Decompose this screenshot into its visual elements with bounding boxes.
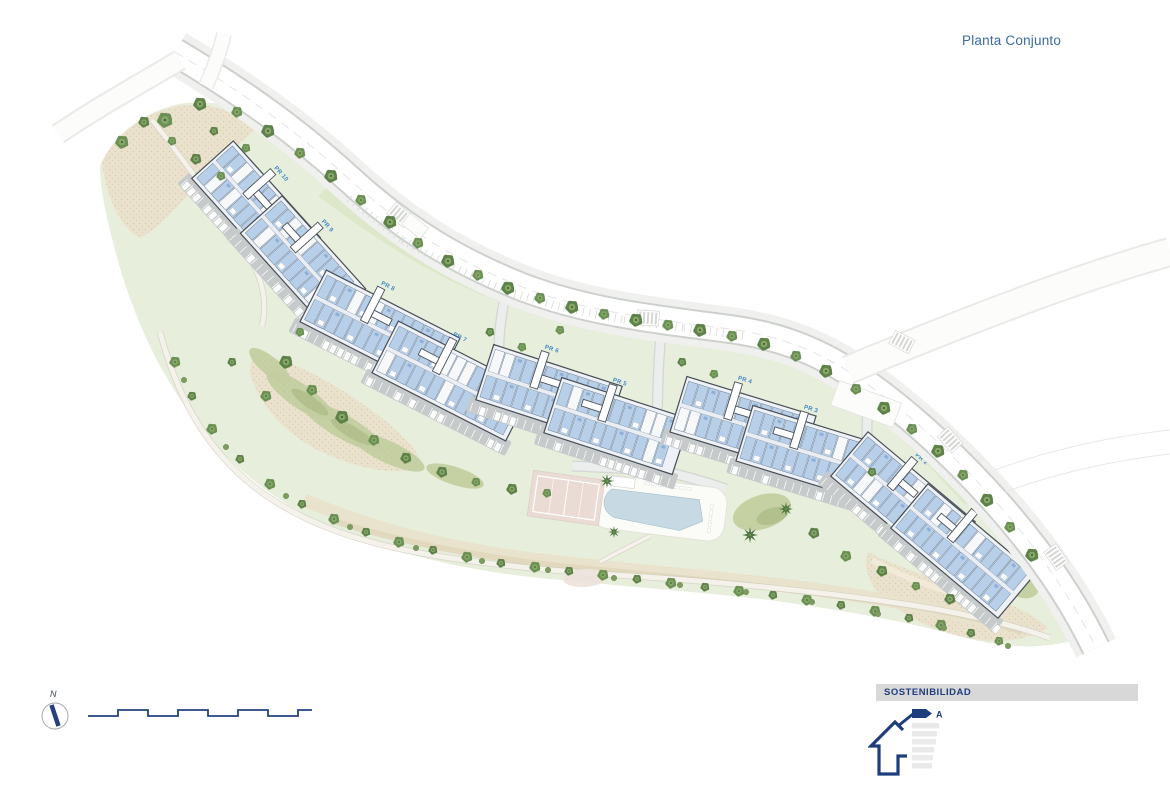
scale-bar-line (88, 710, 312, 716)
paddle-court (527, 470, 605, 526)
energy-rating-icon: A (868, 704, 960, 782)
site-plan-sheet: PR 10PR 9PR 8PR 7PR 6PR 5PR 4PR 3PR 2PR … (0, 0, 1170, 785)
bush-icon (875, 611, 881, 617)
energy-bars (912, 723, 939, 769)
bush-icon (743, 589, 749, 595)
bush-icon (223, 444, 229, 450)
rating-arrow-icon (912, 709, 932, 718)
house-icon (871, 714, 913, 774)
bush-icon (545, 567, 551, 573)
bush-icon (479, 558, 485, 564)
north-label: N (50, 689, 57, 699)
bush-icon (941, 625, 947, 631)
sheet-title: Planta Conjunto (962, 33, 1061, 48)
scale-bar (84, 698, 318, 726)
bush-icon (1005, 643, 1011, 649)
north-compass: N (34, 686, 78, 743)
bush-icon (677, 582, 683, 588)
sustainability-heading-banner: SOSTENIBILIDAD (876, 684, 1138, 701)
bush-icon (809, 599, 815, 605)
energy-rating-letter: A (936, 710, 943, 720)
bush-icon (283, 493, 289, 499)
bush-icon (611, 575, 617, 581)
bush-icon (347, 524, 353, 530)
site-plan-drawing: PR 10PR 9PR 8PR 7PR 6PR 5PR 4PR 3PR 2PR … (0, 0, 1170, 785)
bush-icon (181, 377, 187, 383)
sustainability-heading: SOSTENIBILIDAD (876, 687, 971, 698)
bush-icon (413, 545, 419, 551)
